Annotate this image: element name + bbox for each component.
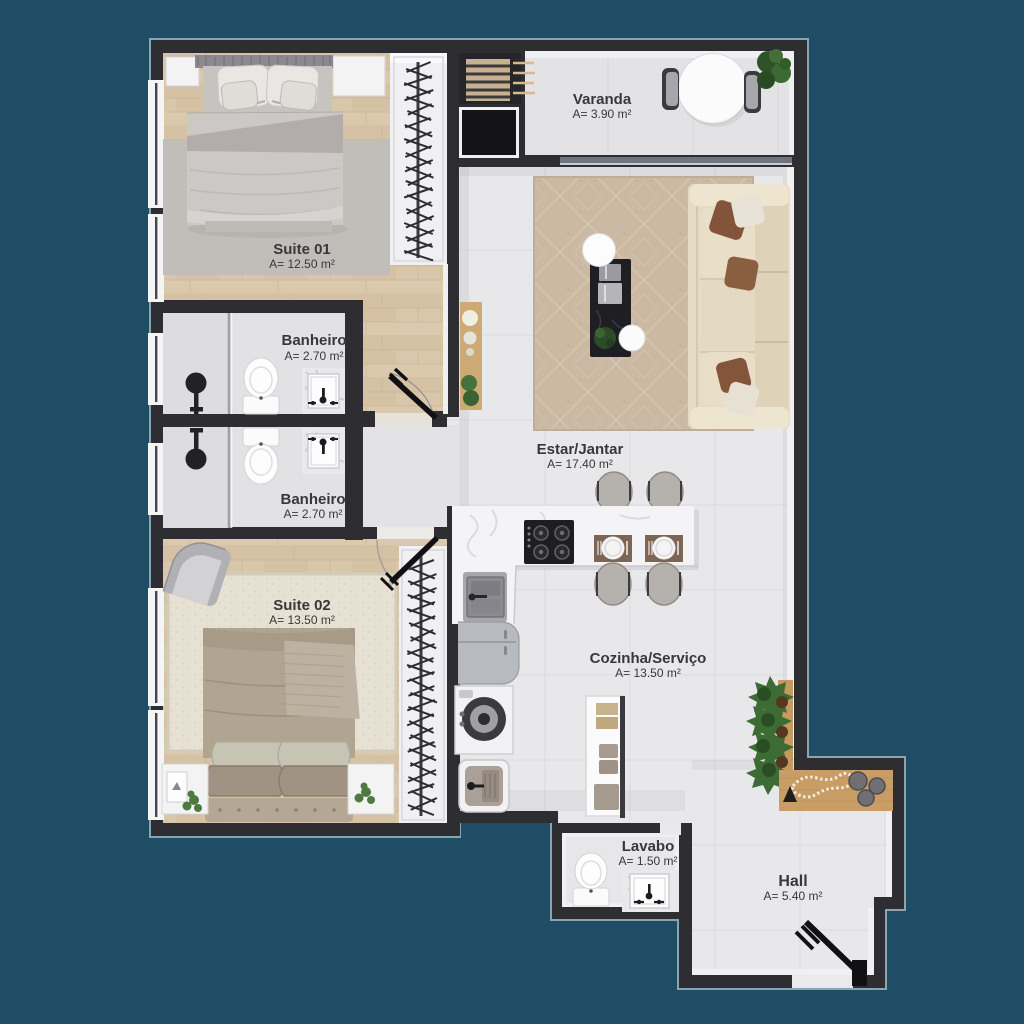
svg-text:Cozinha/Serviço: Cozinha/Serviço <box>590 650 707 667</box>
svg-text:A= 2.70 m²: A= 2.70 m² <box>284 349 343 363</box>
svg-text:Suite 01: Suite 01 <box>273 241 331 258</box>
svg-text:A= 3.90 m²: A= 3.90 m² <box>572 107 631 121</box>
svg-text:A= 13.50 m²: A= 13.50 m² <box>269 613 335 627</box>
svg-text:A= 2.70 m²: A= 2.70 m² <box>283 507 342 521</box>
svg-text:A= 5.40 m²: A= 5.40 m² <box>763 889 822 903</box>
svg-text:Banheiro: Banheiro <box>281 332 346 349</box>
svg-text:A= 17.40 m²: A= 17.40 m² <box>547 457 613 471</box>
svg-text:A= 1.50 m²: A= 1.50 m² <box>618 854 677 868</box>
svg-text:Lavabo: Lavabo <box>622 838 675 855</box>
svg-text:Banheiro: Banheiro <box>280 491 345 508</box>
svg-text:A= 12.50 m²: A= 12.50 m² <box>269 257 335 271</box>
svg-text:Estar/Jantar: Estar/Jantar <box>537 441 624 458</box>
svg-text:A= 13.50 m²: A= 13.50 m² <box>615 666 681 680</box>
svg-text:Hall: Hall <box>778 873 807 890</box>
svg-text:Varanda: Varanda <box>573 91 632 108</box>
svg-text:Suite 02: Suite 02 <box>273 597 331 614</box>
